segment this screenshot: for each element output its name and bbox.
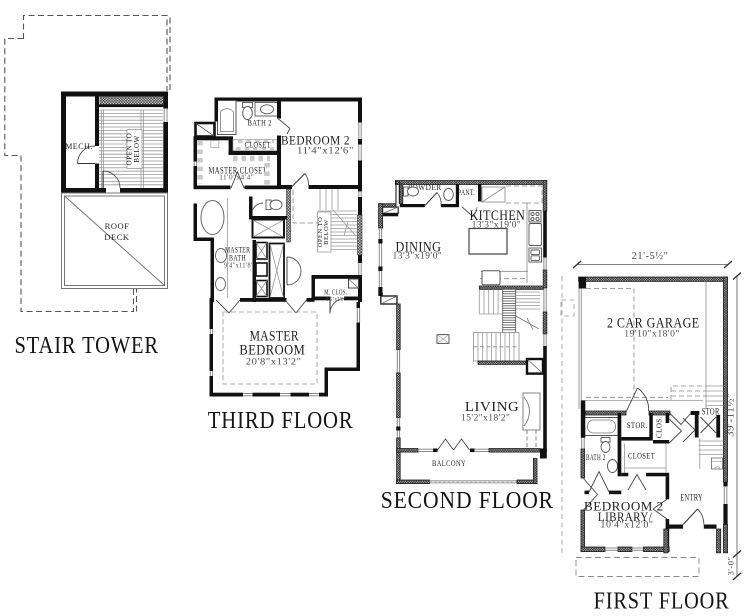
svg-text:DECK: DECK: [104, 232, 130, 242]
svg-text:11'4"x12'6": 11'4"x12'6": [297, 146, 354, 156]
svg-text:21'-5½": 21'-5½": [632, 251, 669, 262]
svg-text:19'10"x18'0": 19'10"x18'0": [624, 330, 680, 340]
svg-text:13'3"x19'0": 13'3"x19'0": [393, 252, 443, 262]
svg-text:CLOSET: CLOSET: [628, 451, 655, 461]
svg-text:15'2"x18'2": 15'2"x18'2": [461, 413, 510, 423]
svg-text:LIVING: LIVING: [465, 399, 519, 414]
svg-text:THIRD FLOOR: THIRD FLOOR: [208, 408, 354, 434]
svg-text:BEDROOM: BEDROOM: [239, 342, 305, 358]
svg-text:ROOF: ROOF: [105, 221, 130, 231]
svg-text:BELOW: BELOW: [133, 135, 141, 162]
svg-text:STOR: STOR: [702, 407, 720, 417]
svg-text:20'8"x13'2": 20'8"x13'2": [246, 358, 302, 368]
svg-text:FIRST FLOOR: FIRST FLOOR: [594, 589, 730, 615]
svg-text:MECH.: MECH.: [65, 142, 93, 151]
svg-text:CLOSET: CLOSET: [245, 140, 272, 150]
svg-text:BELOW: BELOW: [323, 219, 330, 245]
svg-text:PANT.: PANT.: [458, 188, 475, 197]
svg-text:BATH 2: BATH 2: [586, 453, 606, 462]
svg-text:9'4"x11'8": 9'4"x11'8": [224, 262, 254, 270]
svg-text:3'-0": 3'-0": [726, 557, 736, 576]
svg-text:10'4"x12'0": 10'4"x12'0": [600, 520, 653, 530]
svg-text:CLOS.: CLOS.: [656, 416, 664, 438]
svg-text:BATH 2: BATH 2: [248, 118, 272, 128]
svg-text:STAIR TOWER: STAIR TOWER: [15, 333, 160, 359]
svg-text:SECOND FLOOR: SECOND FLOOR: [381, 488, 554, 514]
svg-text:BALCONY: BALCONY: [432, 458, 466, 468]
svg-text:ENTRY: ENTRY: [680, 493, 703, 503]
svg-text:STOR.: STOR.: [627, 420, 648, 430]
